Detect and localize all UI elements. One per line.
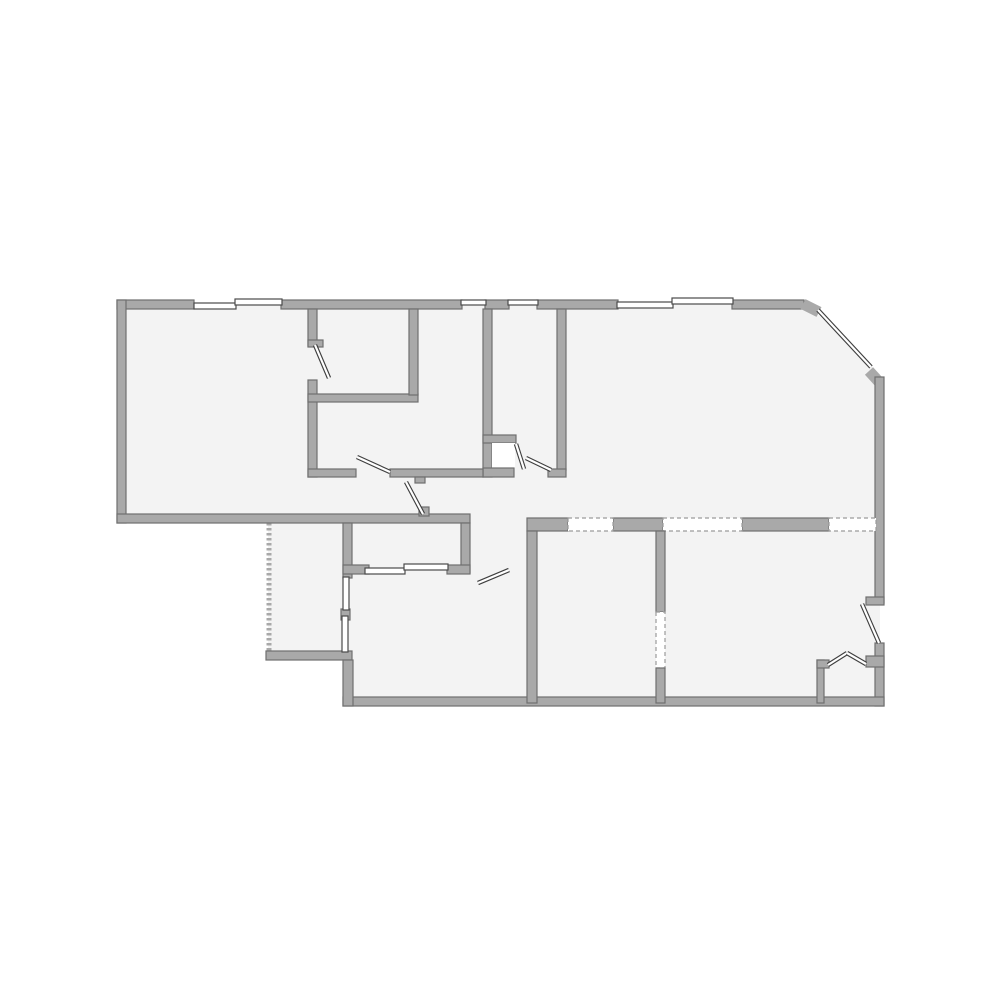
lower-top-opening-3 [829,518,876,531]
window-top-6 [672,298,733,304]
window-porch-2 [342,616,348,652]
top-wall-seg-3 [485,300,509,309]
closet-row-bottom-stub [447,565,470,574]
entry-closet-floor [492,443,515,468]
floor-plan-canvas [0,0,1000,1000]
right-door-head-stub [866,597,884,605]
window-porch-1 [343,577,349,610]
top-wall-seg-4 [537,300,618,309]
lower-top-opening-2 [663,518,742,531]
hall-room-left-wall [483,309,492,477]
lower-top-wall-seg-2 [613,518,663,531]
top-wall-seg-1 [117,300,194,309]
floor-plan [0,0,1000,1000]
room2-bottom-wall [308,394,418,402]
window-top-5 [617,302,673,308]
window-top-2 [235,299,282,305]
top-wall-seg-2 [281,300,462,309]
lower-top-opening-1 [568,518,613,531]
window-top-4 [508,300,538,305]
middle-room-bottom-wall-left [308,469,356,477]
left-room-bottom-wall [117,514,470,523]
left-exterior-wall [117,300,126,523]
middle-room-bottom-wall-right [390,469,483,477]
bottom-right-divider-upper [656,531,665,612]
room2-right-wall [409,309,418,395]
hall-room-right-wall [557,309,566,470]
right-exterior-wall-upper [875,377,884,603]
bottom-exterior-wall [343,697,884,706]
bottom-mid-right-wall [527,531,537,703]
bottom-right-divider-lower [656,668,665,703]
window-top-3 [461,300,486,305]
entry-closet-top-wall [483,435,516,443]
window-closet-row-1 [365,568,405,574]
bottom-mid-room-left-wall [343,660,353,706]
top-wall-seg-5 [732,300,804,309]
bottom-right-divider-opening [656,612,665,668]
entry-closet-bottom-wall [483,468,514,477]
window-closet-row-2 [404,564,448,570]
hall-door-stub-top [415,477,425,483]
corner-closet-stub-right [866,656,884,667]
window-top-1 [194,303,236,309]
lower-top-wall-seg-3 [742,518,829,531]
building-footprint [121,304,880,702]
lower-top-wall-seg-1 [527,518,568,531]
corner-closet-stub-left [817,660,829,668]
porch-bottom-wall [266,651,352,660]
chamfer-wall-stub-top [803,304,819,312]
